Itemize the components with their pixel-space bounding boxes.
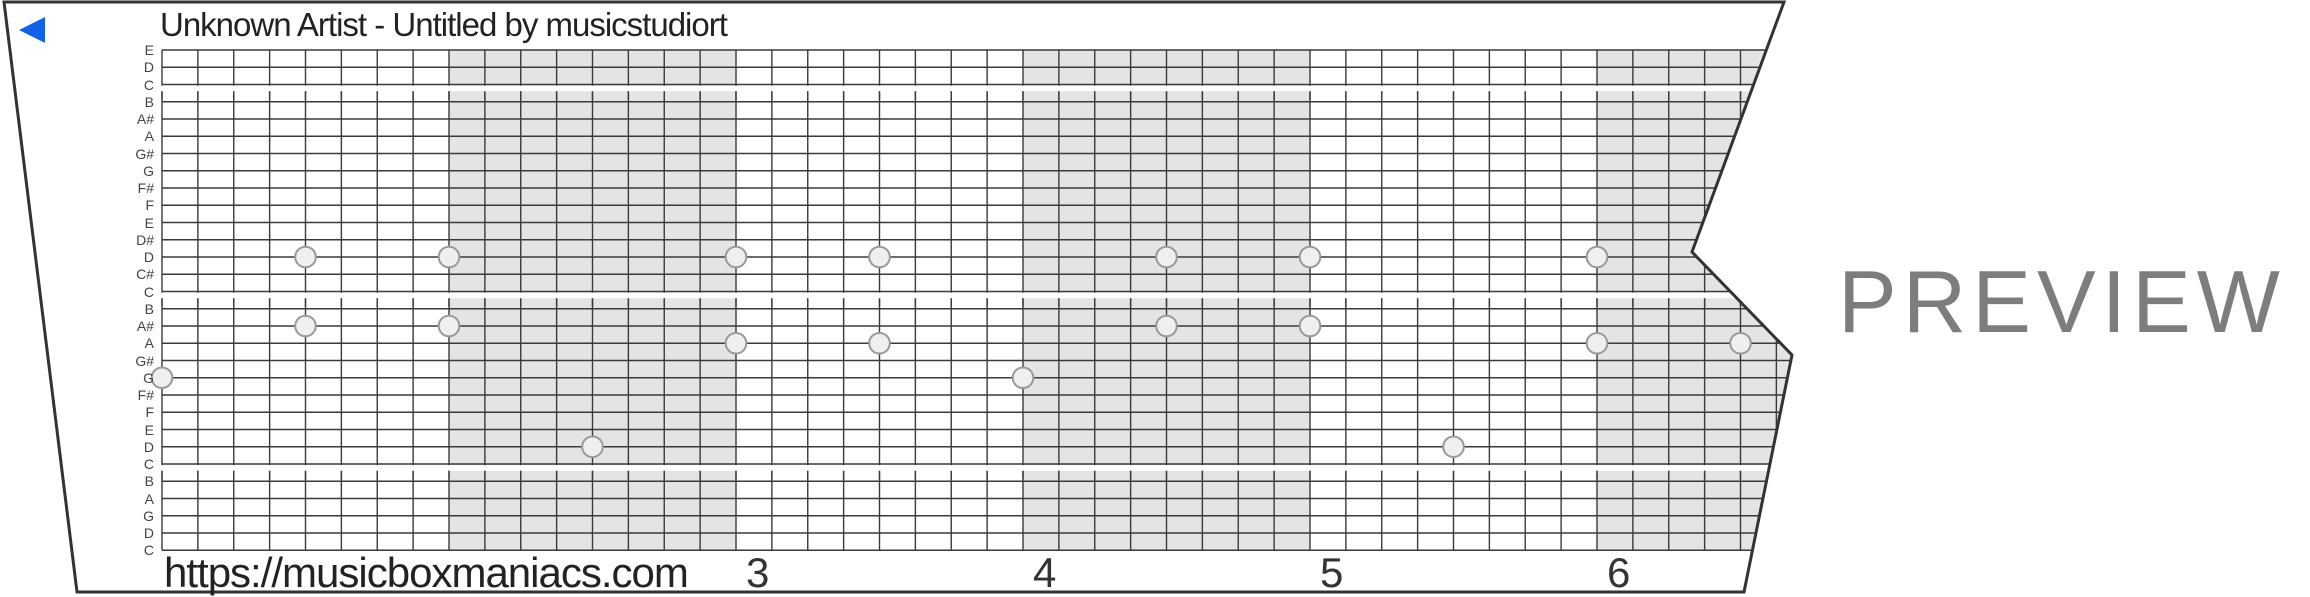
strip-title: Unknown Artist - Untitled by musicstudio… (160, 8, 727, 41)
note-label: D (110, 525, 154, 541)
note-label: E (110, 422, 154, 438)
note-hole-D (869, 247, 890, 268)
note-label: D (110, 249, 154, 265)
note-label: B (110, 473, 154, 489)
note-label: A (110, 491, 154, 507)
note-label: F# (110, 180, 154, 196)
measure-number: 5 (1320, 552, 1343, 594)
octave-break-band (160, 465, 1800, 471)
note-label: E (110, 42, 154, 58)
note-label: A# (110, 318, 154, 334)
note-label: D (110, 439, 154, 455)
measure-number: 6 (1607, 552, 1630, 594)
note-label: G (110, 163, 154, 179)
note-label: C (110, 456, 154, 472)
note-hole-D (1156, 247, 1177, 268)
note-label: E (110, 215, 154, 231)
octave-break-band (160, 86, 1800, 92)
measure-number: 4 (1033, 552, 1056, 594)
octave-break-band (160, 293, 1800, 299)
note-label: G# (110, 146, 154, 162)
note-hole-D (1443, 436, 1464, 457)
note-label: D# (110, 232, 154, 248)
preview-watermark: PREVIEW (1838, 258, 2286, 346)
note-hole-A# (295, 316, 316, 337)
note-label: B (110, 94, 154, 110)
note-hole-D (439, 247, 460, 268)
note-label: A (110, 335, 154, 351)
note-hole-D (726, 247, 747, 268)
note-label: F (110, 197, 154, 213)
note-hole-G (1013, 367, 1034, 388)
note-label: G (110, 508, 154, 524)
note-label: C# (110, 266, 154, 282)
note-hole-A (726, 333, 747, 354)
note-hole-A (869, 333, 890, 354)
note-hole-A (1587, 333, 1608, 354)
note-hole-D (1587, 247, 1608, 268)
note-label: F (110, 404, 154, 420)
note-label: A# (110, 111, 154, 127)
note-label: D (110, 59, 154, 75)
note-hole-A# (1156, 316, 1177, 337)
note-hole-G (152, 367, 173, 388)
note-label: A (110, 128, 154, 144)
music-box-strip-preview: Unknown Artist - Untitled by musicstudio… (0, 0, 2310, 597)
note-hole-D (1300, 247, 1321, 268)
note-label: G# (110, 353, 154, 369)
note-label: C (110, 77, 154, 93)
note-hole-A (1730, 333, 1751, 354)
note-label: C (110, 542, 154, 558)
note-label: F# (110, 387, 154, 403)
note-hole-D (582, 436, 603, 457)
measure-number: 3 (746, 552, 769, 594)
note-label: C (110, 284, 154, 300)
site-url: https://musicboxmaniacs.com (164, 552, 688, 594)
note-hole-A# (1300, 316, 1321, 337)
note-hole-A# (439, 316, 460, 337)
note-label: G (110, 370, 154, 386)
note-hole-D (295, 247, 316, 268)
note-label: B (110, 301, 154, 317)
